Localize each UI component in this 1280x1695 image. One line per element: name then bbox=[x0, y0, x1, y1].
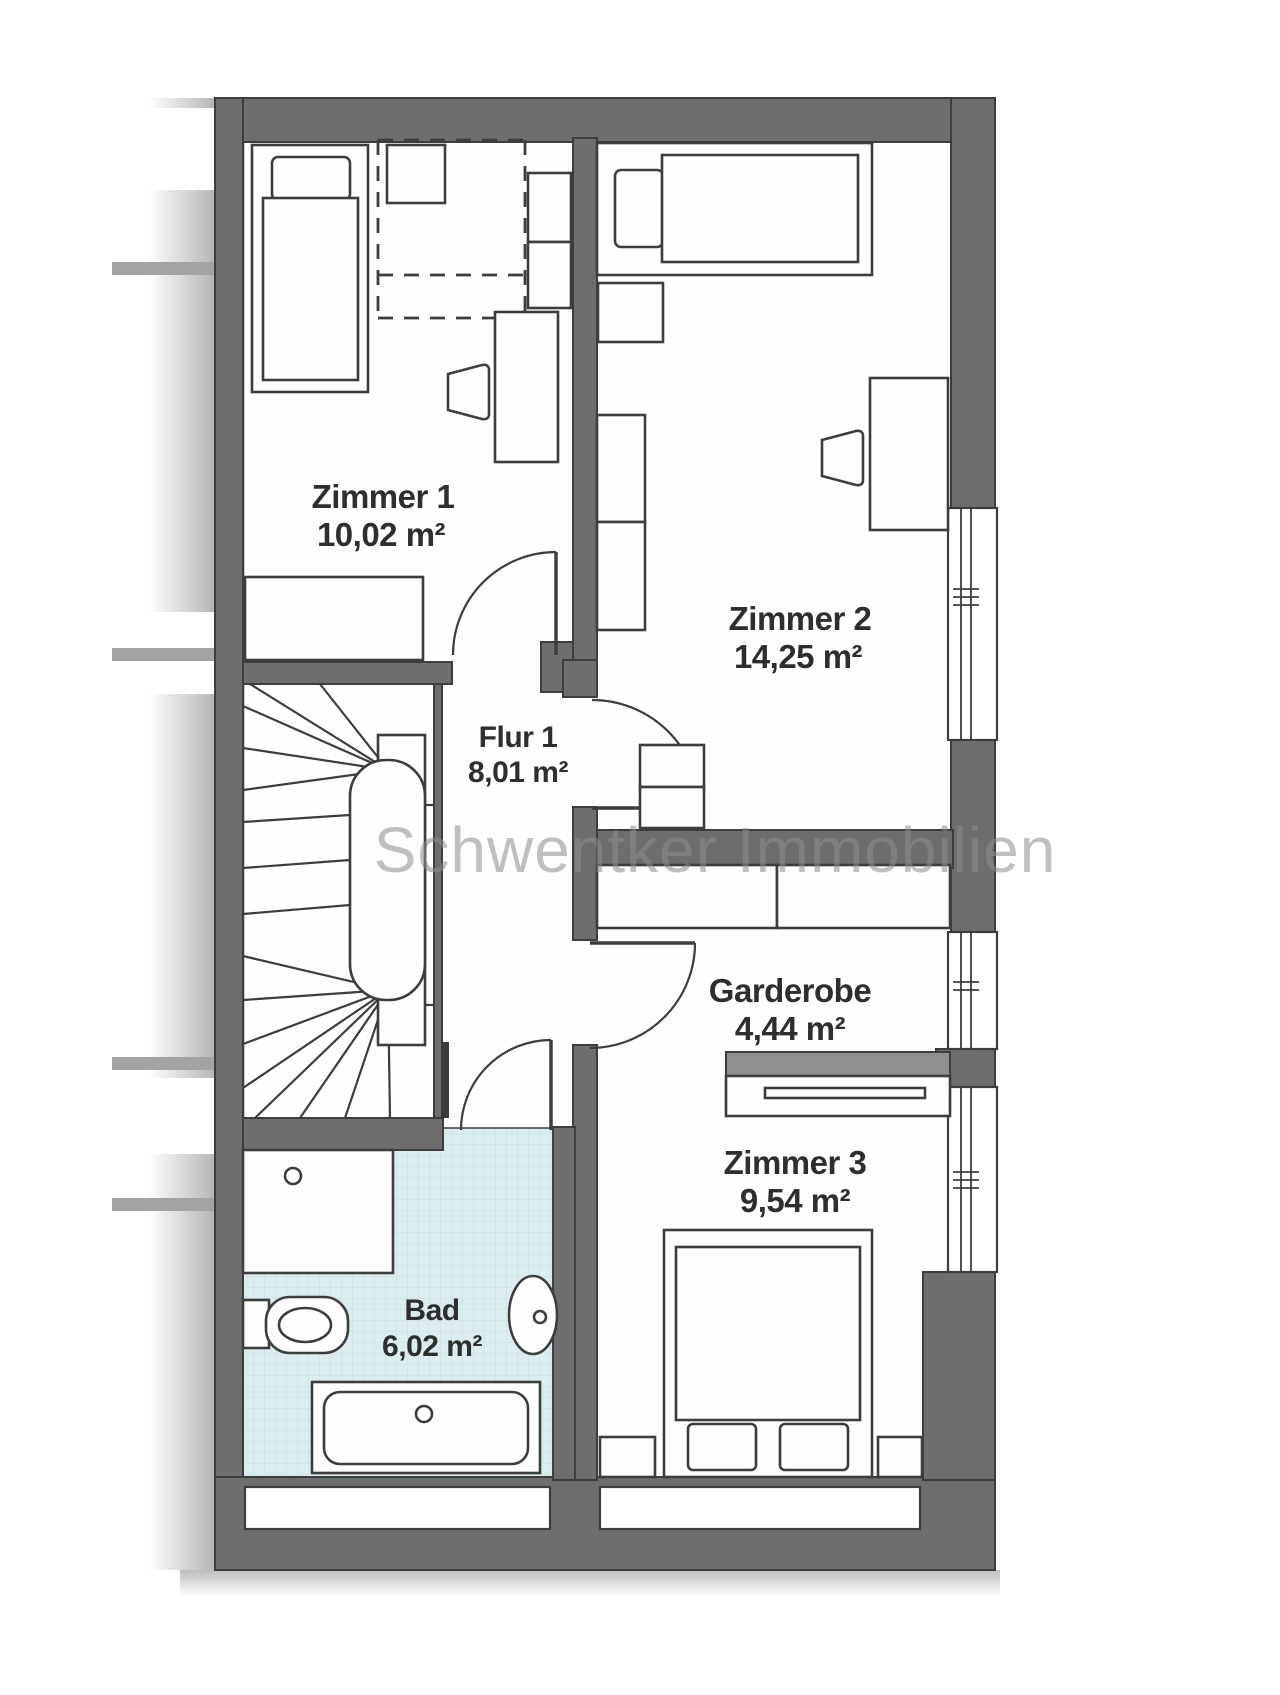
nightstand-zimmer2 bbox=[598, 283, 663, 342]
wardrobe-zimmer3-top bbox=[726, 1052, 950, 1076]
bathtub bbox=[312, 1382, 540, 1473]
nightstand-zimmer3-right bbox=[878, 1437, 922, 1477]
bed-zimmer1-mattress bbox=[263, 198, 358, 380]
nightstand-zimmer3-left bbox=[600, 1437, 655, 1477]
wardrobe-zimmer2-a bbox=[597, 415, 645, 522]
zimmer1-area: 10,02 m² bbox=[317, 516, 446, 553]
dresser-zimmer1 bbox=[245, 577, 423, 660]
cabinet-zimmer1-top bbox=[387, 145, 445, 203]
wall-flur-zimmer3 bbox=[573, 1045, 597, 1480]
bed-zimmer3-pillow-left bbox=[688, 1424, 756, 1470]
bed-zimmer3-mattress bbox=[676, 1247, 860, 1420]
bad-area: 6,02 m² bbox=[382, 1330, 482, 1363]
zimmer3-area: 9,54 m² bbox=[740, 1182, 851, 1219]
zimmer3-name: Zimmer 3 bbox=[724, 1144, 867, 1181]
window-bad-south bbox=[245, 1487, 550, 1529]
desk-zimmer2 bbox=[870, 378, 948, 530]
bed-zimmer2-pillow bbox=[615, 170, 663, 247]
watermark-text: Schwentker Immobilien bbox=[374, 814, 1057, 886]
wardrobe-zimmer3-rail bbox=[765, 1088, 925, 1098]
wardrobe-zimmer2-b bbox=[597, 522, 645, 630]
flur1-area: 8,01 m² bbox=[468, 756, 568, 789]
bed-zimmer3-pillow-right bbox=[780, 1424, 848, 1470]
desk-zimmer1 bbox=[495, 312, 558, 462]
washbasin bbox=[509, 1276, 557, 1354]
floor-plan-page: Zimmer 1 10,02 m² Zimmer 2 14,25 m² Flur… bbox=[0, 0, 1280, 1695]
wall-north bbox=[215, 98, 995, 142]
cabinet-zimmer1-right-a bbox=[528, 173, 571, 242]
wall-jamb-flur bbox=[563, 660, 597, 697]
cabinet-zimmer1-right-b bbox=[528, 242, 571, 308]
wall-stairs-east bbox=[434, 684, 442, 1118]
floor-plan-drawing: Zimmer 1 10,02 m² Zimmer 2 14,25 m² Flur… bbox=[0, 0, 1280, 1695]
garderobe-area: 4,44 m² bbox=[735, 1010, 846, 1047]
window-zimmer3-south bbox=[600, 1487, 920, 1529]
chair-zimmer2 bbox=[822, 431, 863, 485]
window-zimmer2 bbox=[948, 508, 997, 740]
wall-zimmer1-zimmer2 bbox=[573, 138, 597, 697]
zimmer1-name: Zimmer 1 bbox=[312, 478, 455, 515]
shower bbox=[243, 1150, 393, 1273]
door-bad-frame bbox=[442, 1042, 449, 1118]
bed-zimmer2-mattress bbox=[662, 155, 858, 262]
garderobe-name: Garderobe bbox=[709, 972, 872, 1009]
zimmer2-area: 14,25 m² bbox=[734, 638, 863, 675]
zimmer2-name: Zimmer 2 bbox=[729, 600, 872, 637]
window-garderobe bbox=[948, 932, 997, 1049]
bad-name: Bad bbox=[404, 1294, 459, 1327]
wall-east-4 bbox=[923, 1272, 995, 1480]
window-zimmer3 bbox=[948, 1087, 997, 1272]
bed-zimmer1-pillow bbox=[272, 157, 350, 200]
wall-east-1 bbox=[951, 98, 995, 508]
wall-bad-north bbox=[243, 1118, 443, 1150]
flur1-name: Flur 1 bbox=[479, 721, 558, 754]
wall-west bbox=[215, 98, 243, 1570]
toilet bbox=[243, 1297, 348, 1353]
wall-stairs-north bbox=[243, 662, 452, 684]
shower-drain bbox=[285, 1168, 301, 1184]
shelf-zimmer2-a bbox=[640, 745, 704, 787]
chair-zimmer1 bbox=[448, 365, 489, 419]
